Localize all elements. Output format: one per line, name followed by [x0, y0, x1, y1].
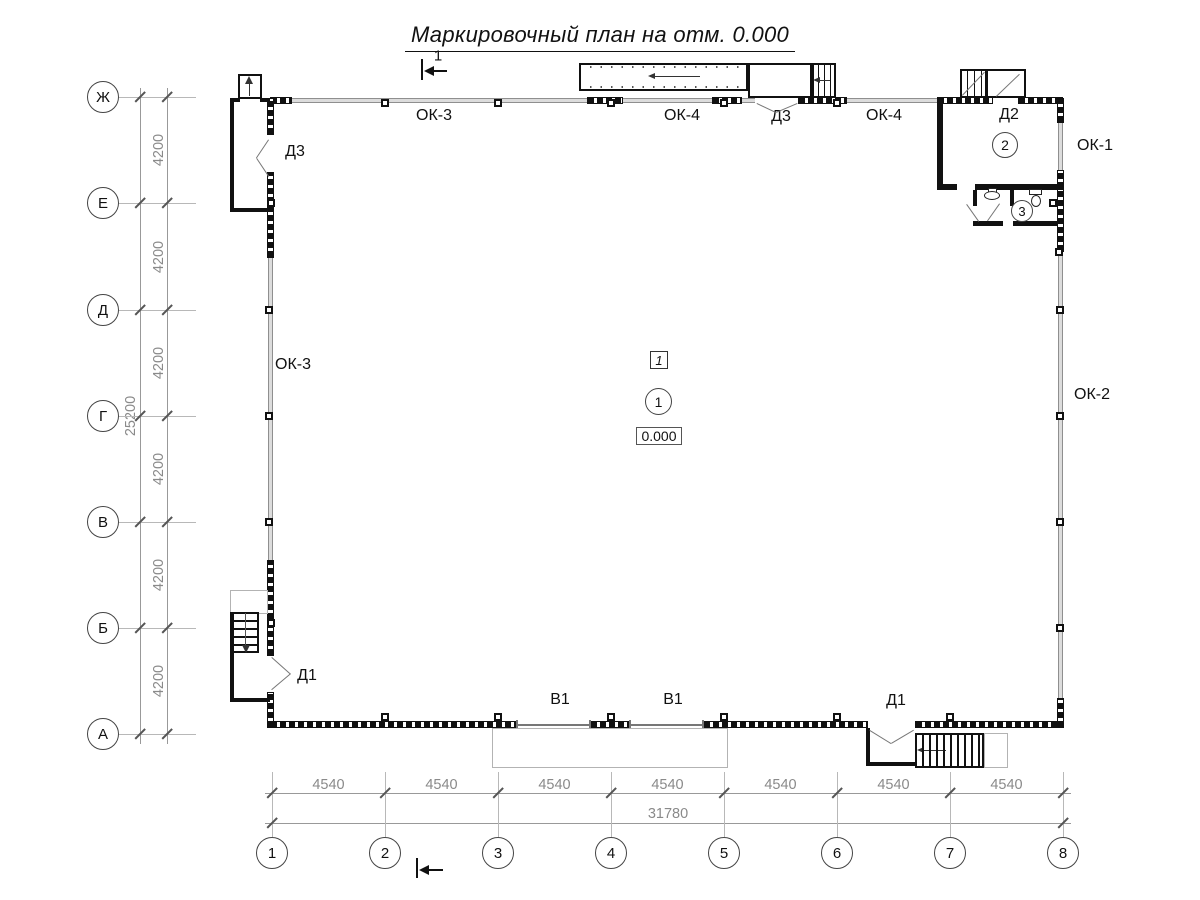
- window-label-ok3-top: ОК-3: [416, 107, 452, 125]
- axis-bubble-Ж: Ж: [87, 81, 119, 113]
- pilaster: [1056, 412, 1064, 420]
- ramp-arrow-shaft: [655, 76, 700, 77]
- room-number-lobby: 2: [992, 132, 1018, 158]
- room-number-wc: 3: [1011, 200, 1033, 222]
- pilaster: [265, 518, 273, 526]
- pilaster: [1055, 248, 1063, 256]
- pilaster: [607, 713, 615, 721]
- tambour-wall: [230, 98, 234, 212]
- axis-bubble-В: В: [87, 506, 119, 538]
- stair-tread: [957, 735, 959, 766]
- axis-extension-line: [611, 772, 612, 837]
- window-label-ok4-a: ОК-4: [664, 107, 700, 125]
- tambour-wall: [230, 208, 270, 212]
- stair-tread: [922, 735, 924, 766]
- section-mark-bar: [416, 858, 418, 878]
- stair-landing-outline: [984, 733, 1008, 768]
- pilaster: [833, 713, 841, 721]
- ramp-edge-hatch: [581, 86, 746, 88]
- stair-down-arrow-icon: [242, 645, 250, 653]
- axis-leader-line: [119, 203, 196, 204]
- axis-bubble-5: 5: [708, 837, 740, 869]
- door-label-d1-bottom: Д1: [886, 692, 906, 710]
- drawing-title: Маркировочный план на отм. 0.000: [0, 22, 1200, 52]
- dim-segment-left: 4200: [151, 559, 167, 591]
- axis-bubble-Б: Б: [87, 612, 119, 644]
- pilaster: [381, 713, 389, 721]
- wall-segment: [1057, 170, 1064, 252]
- stair-tread: [971, 735, 973, 766]
- stair-tread: [936, 735, 938, 766]
- door-label-d3-left: Д3: [285, 143, 305, 161]
- pilaster: [1056, 518, 1064, 526]
- axis-bubble-8: 8: [1047, 837, 1079, 869]
- wall-segment: [267, 98, 274, 135]
- wall-segment: [703, 721, 868, 728]
- pilaster: [267, 199, 275, 207]
- pilaster: [265, 412, 273, 420]
- pilaster: [720, 99, 728, 107]
- dim-segment-bottom: 4540: [990, 777, 1022, 793]
- axis-bubble-3: 3: [482, 837, 514, 869]
- pilaster: [494, 99, 502, 107]
- pilaster: [381, 99, 389, 107]
- axis-bubble-4: 4: [595, 837, 627, 869]
- axis-bubble-7: 7: [934, 837, 966, 869]
- window-label-ok2: ОК-2: [1074, 386, 1110, 404]
- door-swing-line: [891, 730, 914, 744]
- wall-segment: [915, 721, 1063, 728]
- pilaster: [607, 99, 615, 107]
- tambour-wall: [866, 728, 870, 766]
- steps-arrow-icon: [813, 77, 820, 83]
- room-wall: [937, 100, 943, 190]
- wall-segment: [267, 172, 274, 258]
- step-tread: [967, 71, 968, 96]
- axis-extension-line: [837, 772, 838, 837]
- room-wall: [937, 184, 957, 190]
- axis-extension-line: [1063, 772, 1064, 837]
- door-label-d1-left: Д1: [297, 667, 317, 685]
- door-swing-line: [869, 730, 891, 744]
- pilaster: [267, 619, 275, 627]
- dim-segment-bottom: 4540: [877, 777, 909, 793]
- pilaster: [494, 713, 502, 721]
- pilaster: [1056, 306, 1064, 314]
- dim-segment-left: 4200: [151, 240, 167, 272]
- axis-bubble-1: 1: [256, 837, 288, 869]
- dim-total-bottom: 31780: [648, 806, 688, 822]
- gate-label-v1-b: В1: [663, 691, 683, 709]
- entrance-landing: [986, 69, 1026, 98]
- axis-extension-line: [385, 772, 386, 837]
- axis-bubble-6: 6: [821, 837, 853, 869]
- axis-leader-line: [119, 310, 196, 311]
- window-label-ok1: ОК-1: [1077, 137, 1113, 155]
- stair-tread: [929, 735, 931, 766]
- exit-arrow-icon: [245, 76, 253, 84]
- window-label-ok4-b: ОК-4: [866, 107, 902, 125]
- axis-leader-line: [119, 522, 196, 523]
- wall-segment: [267, 560, 274, 656]
- dim-segment-left: 4200: [151, 134, 167, 166]
- entrance-landing: [748, 63, 812, 98]
- stair-landing-outline: [230, 590, 268, 614]
- pilaster: [1056, 624, 1064, 632]
- drawing-title-text: Маркировочный план на отм. 0.000: [405, 22, 795, 52]
- step-tread: [830, 65, 831, 96]
- axis-bubble-Д: Д: [87, 294, 119, 326]
- section-arrow-shaft: [434, 70, 447, 72]
- tambour-wall: [230, 612, 234, 702]
- section-arrow-icon: [424, 66, 434, 76]
- wall-segment: [1057, 698, 1064, 728]
- tambour-wall: [230, 698, 270, 702]
- window-label-ok3-left: ОК-3: [275, 356, 311, 374]
- section-mark-bar: [421, 59, 423, 80]
- axis-extension-line: [498, 772, 499, 837]
- wall-segment: [1057, 98, 1064, 123]
- stair-tread: [964, 735, 966, 766]
- axis-leader-line: [119, 734, 196, 735]
- axis-bubble-Е: Е: [87, 187, 119, 219]
- pilaster: [946, 713, 954, 721]
- hall-type-mark: 1: [650, 351, 668, 369]
- door-label-d2: Д2: [999, 106, 1019, 124]
- axis-leader-line: [119, 416, 196, 417]
- dim-segment-left: 4200: [151, 347, 167, 379]
- pilaster: [265, 306, 273, 314]
- axis-extension-line: [950, 772, 951, 837]
- pilaster: [720, 713, 728, 721]
- dim-segment-bottom: 4540: [312, 777, 344, 793]
- ramp-edge-hatch: [581, 66, 746, 68]
- dim-segment-bottom: 4540: [764, 777, 796, 793]
- elevation-mark: 0.000: [636, 427, 682, 445]
- dim-segment-bottom: 4540: [538, 777, 570, 793]
- axis-leader-line: [119, 97, 196, 98]
- gate-label-v1-a: В1: [550, 691, 570, 709]
- dim-segment-bottom: 4540: [425, 777, 457, 793]
- gate-apron-outline: [492, 728, 728, 768]
- floor-plan-sheet: Маркировочный план на отм. 0.000: [0, 0, 1200, 900]
- wall-segment: [937, 97, 993, 104]
- wall-segment: [590, 721, 630, 728]
- stair-arrow-shaft: [245, 613, 246, 646]
- axis-bubble-Г: Г: [87, 400, 119, 432]
- stair-tread: [978, 735, 980, 766]
- section-arrow-shaft: [429, 869, 443, 871]
- tambour-wall: [866, 762, 917, 766]
- sink-icon: [984, 191, 1000, 200]
- stair-tread: [943, 735, 945, 766]
- pilaster: [1049, 199, 1057, 207]
- door-swing-line: [966, 204, 979, 222]
- toilet-icon: [1031, 195, 1041, 207]
- dim-segment-left: 4200: [151, 665, 167, 697]
- wall-segment: [270, 721, 517, 728]
- partition-stub: [973, 190, 977, 206]
- axis-leader-line: [119, 628, 196, 629]
- axis-extension-line: [724, 772, 725, 837]
- stair-tread: [950, 735, 952, 766]
- dim-segment-left: 4200: [151, 453, 167, 485]
- axis-bubble-2: 2: [369, 837, 401, 869]
- door-swing-line: [987, 203, 1000, 221]
- section-label: 1: [434, 48, 442, 65]
- gate-v1-line: [517, 724, 590, 726]
- room-number-hall: 1: [645, 388, 672, 415]
- axis-bubble-А: А: [87, 718, 119, 750]
- dim-segment-bottom: 4540: [651, 777, 683, 793]
- pilaster: [833, 99, 841, 107]
- ramp-arrow-icon: [648, 73, 655, 79]
- section-arrow-icon: [419, 865, 429, 875]
- axis-extension-line: [272, 772, 273, 837]
- gate-v1-line: [630, 724, 703, 726]
- wall-segment: [587, 97, 623, 104]
